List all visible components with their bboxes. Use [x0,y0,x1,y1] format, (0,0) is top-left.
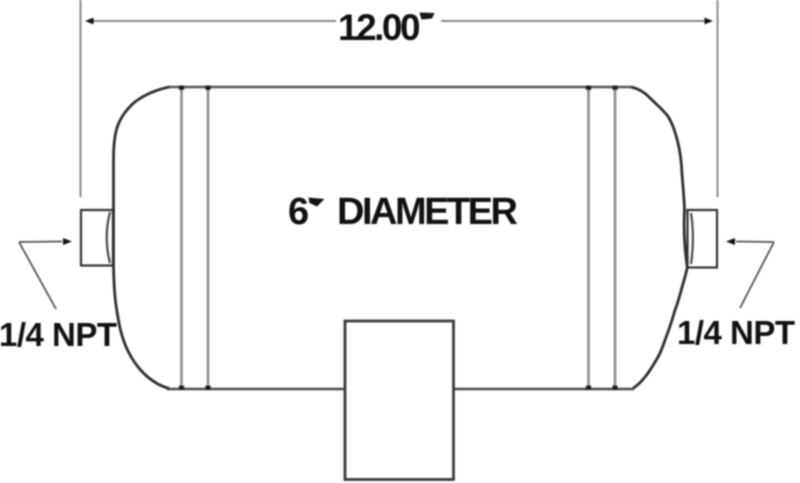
svg-text:12.00: 12.00 [338,7,420,48]
svg-text:DIAMETER: DIAMETER [337,191,518,233]
svg-text:1/4 NPT: 1/4 NPT [0,316,117,353]
svg-text:6: 6 [288,191,308,233]
svg-text:1/4 NPT: 1/4 NPT [677,314,795,351]
